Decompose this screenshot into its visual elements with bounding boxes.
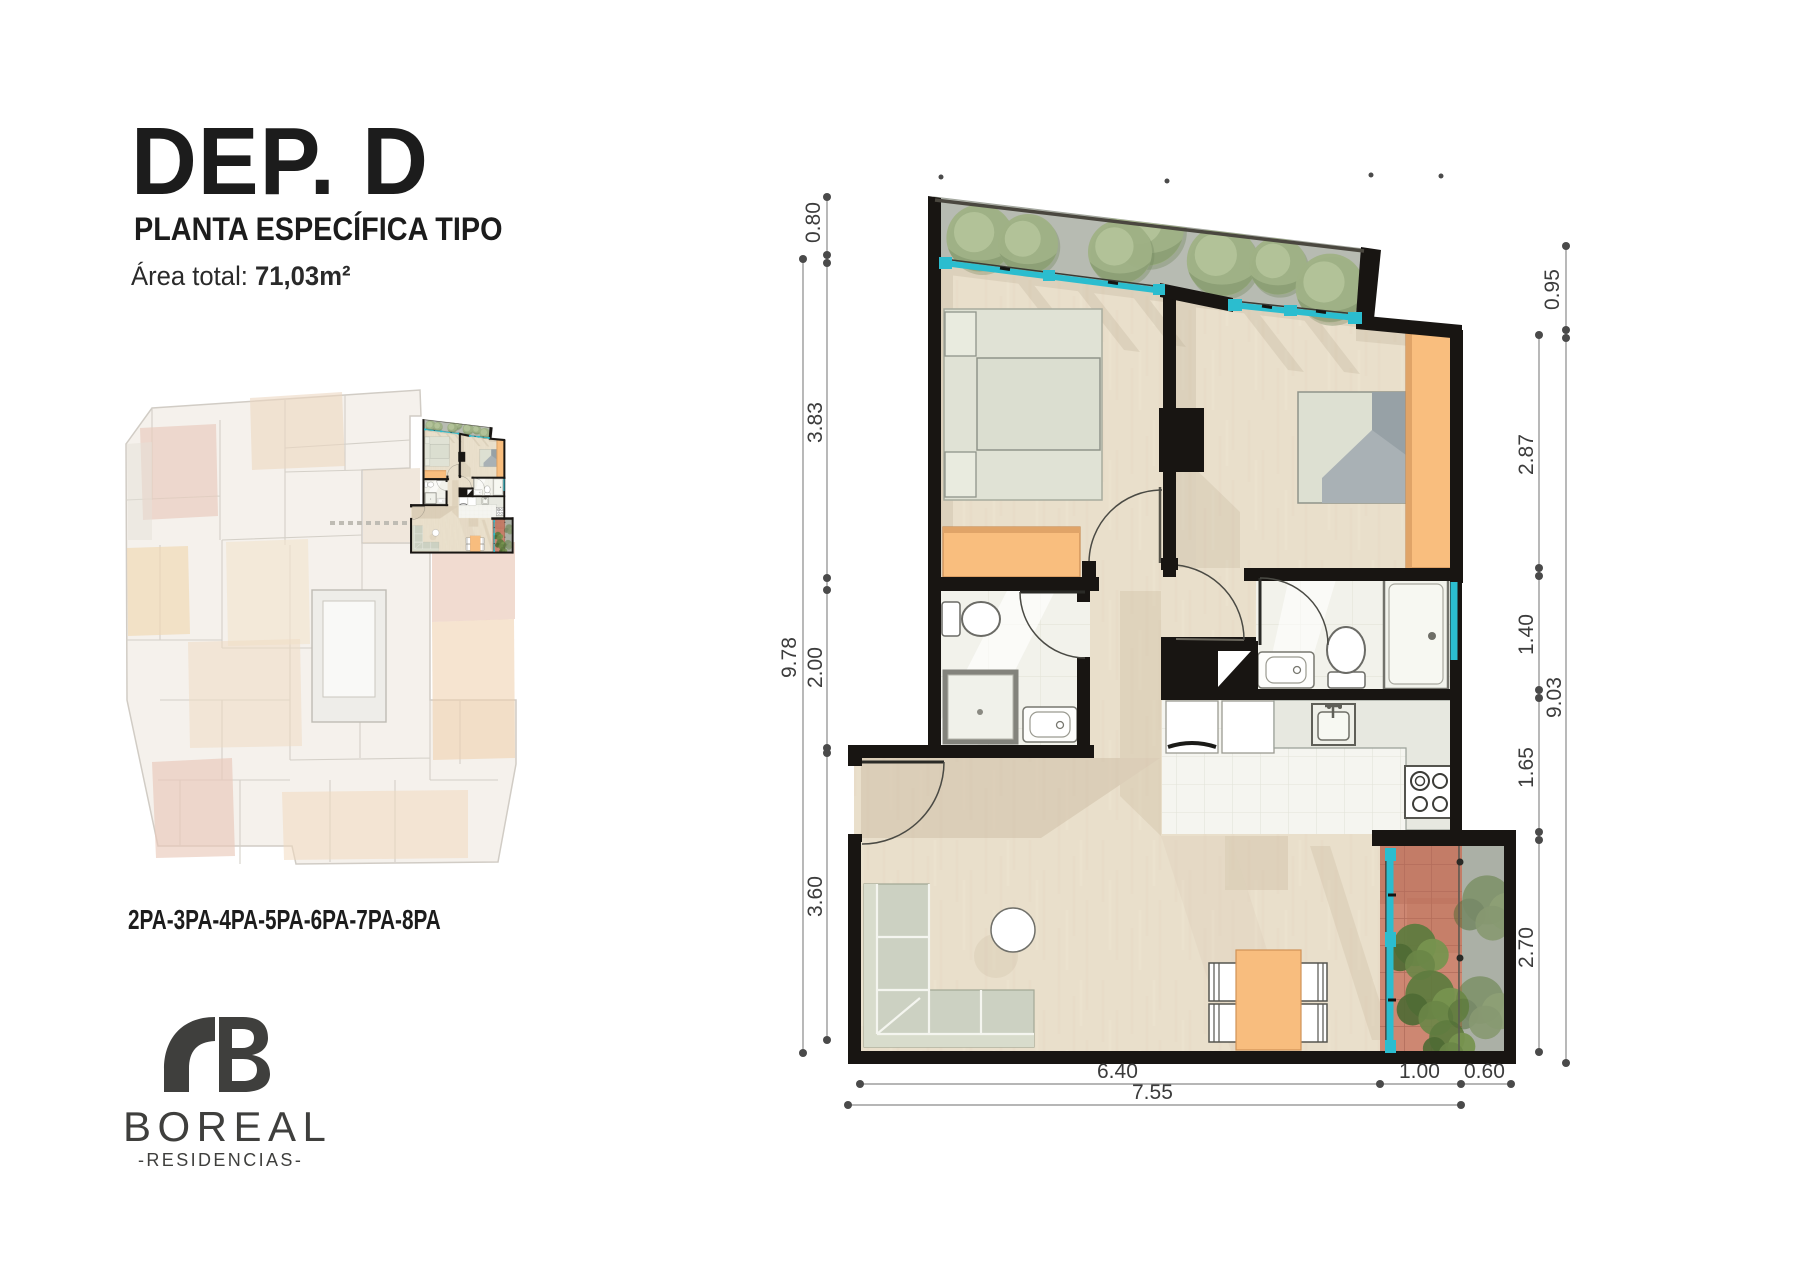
svg-text:PLANTA ESPECÍFICA TIPO: PLANTA ESPECÍFICA TIPO	[134, 211, 503, 248]
svg-text:9.78: 9.78	[778, 637, 801, 678]
svg-text:Área total: 71,03m²: Área total: 71,03m²	[131, 260, 351, 291]
svg-text:9.03: 9.03	[1543, 677, 1566, 718]
svg-text:3.60: 3.60	[804, 876, 827, 917]
svg-text:2.00: 2.00	[804, 647, 827, 688]
svg-text:0.60: 0.60	[1464, 1060, 1505, 1083]
svg-text:7.55: 7.55	[1132, 1081, 1173, 1104]
svg-text:2.70: 2.70	[1515, 927, 1538, 968]
svg-text:BOREAL: BOREAL	[123, 1103, 332, 1150]
svg-text:2.87: 2.87	[1515, 434, 1538, 475]
svg-text:1.00: 1.00	[1399, 1060, 1440, 1083]
svg-text:1.40: 1.40	[1515, 614, 1538, 655]
svg-text:2PA-3PA-4PA-5PA-6PA-7PA-8PA: 2PA-3PA-4PA-5PA-6PA-7PA-8PA	[128, 905, 441, 936]
svg-text:0.95: 0.95	[1541, 269, 1564, 310]
svg-text:0.80: 0.80	[802, 202, 825, 243]
svg-text:6.40: 6.40	[1097, 1060, 1138, 1083]
svg-text:1.65: 1.65	[1515, 747, 1538, 788]
svg-text:-RESIDENCIAS-: -RESIDENCIAS-	[138, 1150, 303, 1170]
svg-text:DEP. D: DEP. D	[131, 107, 429, 215]
svg-text:3.83: 3.83	[804, 402, 827, 443]
